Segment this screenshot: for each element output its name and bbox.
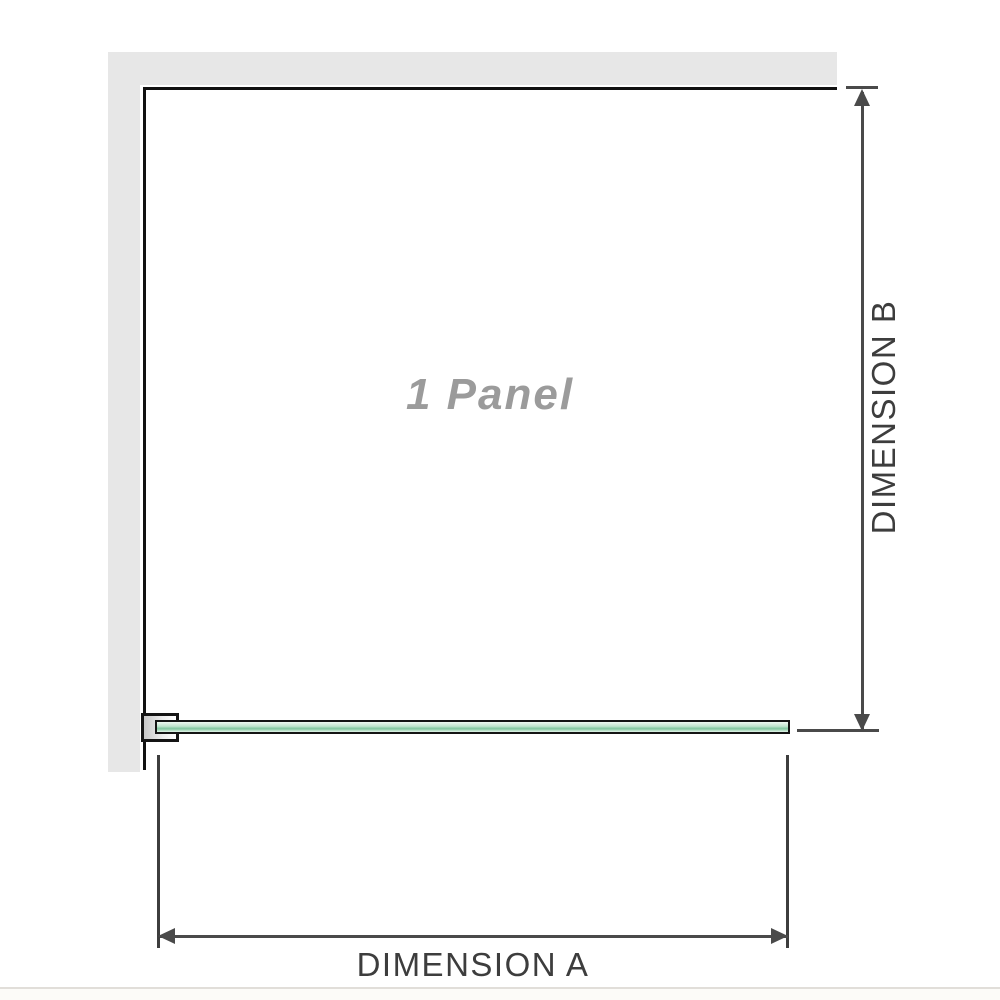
- dimension-a-label: DIMENSION A: [158, 946, 788, 984]
- dimension-b-label: DIMENSION B: [865, 300, 903, 535]
- dimension-diagram: 1 Panel DIMENSION B DIMENSION A: [0, 0, 1000, 1000]
- glass-panel-bar: [155, 720, 790, 734]
- panel-outline-top: [143, 87, 837, 90]
- panel-count-label: 1 Panel: [143, 370, 837, 420]
- dimension-b-arrow-down-icon: [854, 714, 870, 731]
- dimension-a-line: [160, 935, 788, 938]
- panel-outline-left: [143, 87, 146, 770]
- dimension-b-arrow-up-icon: [854, 89, 870, 106]
- dimension-a-extension-right: [786, 755, 789, 948]
- dimension-a-arrow-left-icon: [158, 928, 175, 944]
- dimension-a-extension-left: [157, 755, 160, 948]
- dimension-b-line: [861, 92, 864, 731]
- wall-left-strip: [108, 52, 140, 772]
- wall-top-strip: [108, 52, 837, 85]
- dimension-a-arrow-right-icon: [771, 928, 788, 944]
- bottom-background-strip: [0, 989, 1000, 1000]
